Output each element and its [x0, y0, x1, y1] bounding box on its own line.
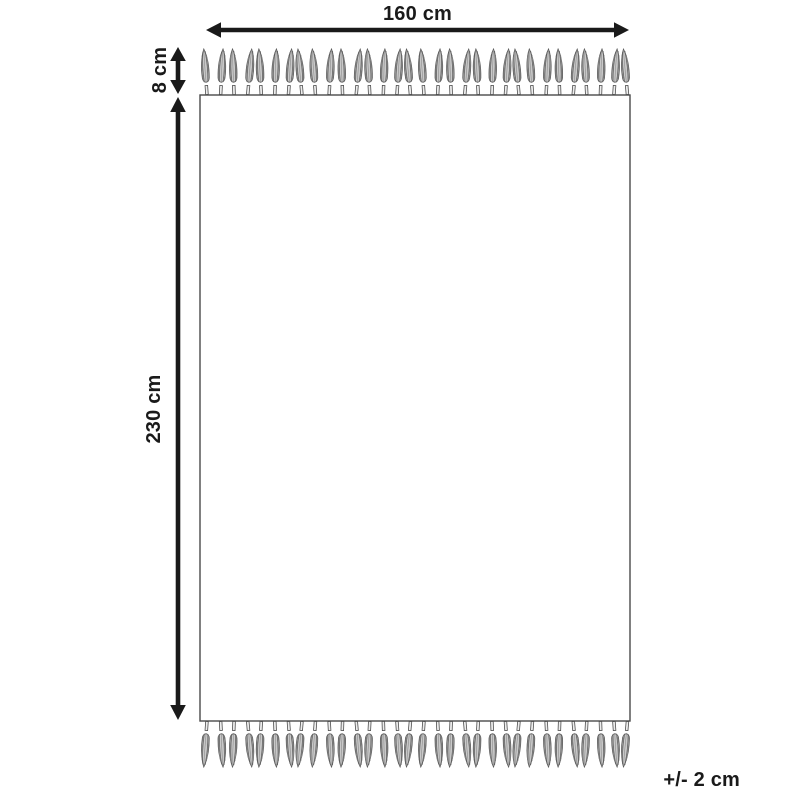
tassel-icon: [620, 721, 631, 767]
diagram-graphics: [0, 0, 800, 800]
tassel-icon: [610, 721, 620, 767]
tassel-icon: [309, 721, 319, 767]
tassel-icon: [620, 49, 631, 95]
tassel-icon: [417, 49, 427, 95]
tolerance-note: +/- 2 cm: [600, 770, 740, 790]
tassel-icon: [434, 721, 444, 767]
tassel-icon: [502, 49, 512, 95]
fringe-length-label: 8 cm: [150, 40, 170, 100]
height-dimension-arrow: [170, 97, 186, 720]
tassel-icon: [393, 721, 403, 767]
tassel-icon: [326, 49, 336, 95]
tassel-icon: [554, 49, 563, 95]
tassel-icon: [229, 49, 238, 95]
tassel-icon: [244, 721, 255, 767]
tassel-icon: [200, 49, 210, 95]
tassel-icon: [570, 721, 581, 767]
tassel-icon: [364, 49, 374, 95]
tassel-icon: [244, 49, 255, 95]
tassel-icon: [597, 721, 606, 767]
tassel-icon: [511, 49, 522, 95]
tassel-icon: [461, 49, 472, 95]
tassel-icon: [353, 49, 364, 95]
tassel-icon: [488, 721, 497, 767]
tassel-icon: [461, 721, 472, 767]
tassel-icon: [271, 49, 280, 95]
tassel-icon: [285, 49, 295, 95]
fringe-dimension-arrow: [170, 47, 186, 94]
tassel-icon: [511, 721, 522, 767]
tassel-icon: [380, 721, 389, 767]
tassel-icon: [446, 721, 455, 767]
tassel-icon: [217, 49, 227, 95]
tassel-icon: [337, 721, 346, 767]
tassel-icon: [570, 49, 581, 95]
tassel-icon: [403, 49, 414, 95]
tassel-icon: [271, 721, 280, 767]
tassel-icon: [309, 49, 319, 95]
tassel-icon: [502, 721, 512, 767]
rug-length-label: 230 cm: [144, 369, 164, 449]
tassel-icon: [597, 49, 606, 95]
tassel-icon: [581, 49, 591, 95]
tassel-icon: [326, 721, 336, 767]
tassel-icon: [554, 721, 563, 767]
tassel-icon: [403, 721, 414, 767]
tassel-icon: [229, 721, 238, 767]
tassel-icon: [543, 721, 553, 767]
tassel-icon: [255, 49, 265, 95]
tassel-icon: [610, 49, 620, 95]
tassel-icon: [255, 721, 265, 767]
rug-outline: [200, 95, 630, 721]
tassel-icon: [285, 721, 295, 767]
tassel-icon: [526, 721, 536, 767]
tassel-icon: [294, 49, 305, 95]
bottom-fringe: [200, 721, 631, 767]
tassel-icon: [337, 49, 346, 95]
tassel-icon: [526, 49, 536, 95]
tassel-icon: [417, 721, 427, 767]
tassel-icon: [434, 49, 444, 95]
tassel-icon: [380, 49, 389, 95]
tassel-icon: [217, 721, 227, 767]
rug-dimension-diagram: 160 cm 8 cm 230 cm +/- 2 cm: [0, 0, 800, 800]
tassel-icon: [364, 721, 374, 767]
tassel-icon: [543, 49, 553, 95]
tassel-icon: [488, 49, 497, 95]
tassel-icon: [200, 721, 210, 767]
tassel-icon: [353, 721, 364, 767]
top-fringe: [200, 49, 631, 95]
width-dimension-label: 160 cm: [207, 4, 628, 24]
tassel-icon: [472, 49, 482, 95]
tassel-icon: [446, 49, 455, 95]
tassel-icon: [581, 721, 591, 767]
tassel-icon: [393, 49, 403, 95]
tassel-icon: [294, 721, 305, 767]
tassel-icon: [472, 721, 482, 767]
